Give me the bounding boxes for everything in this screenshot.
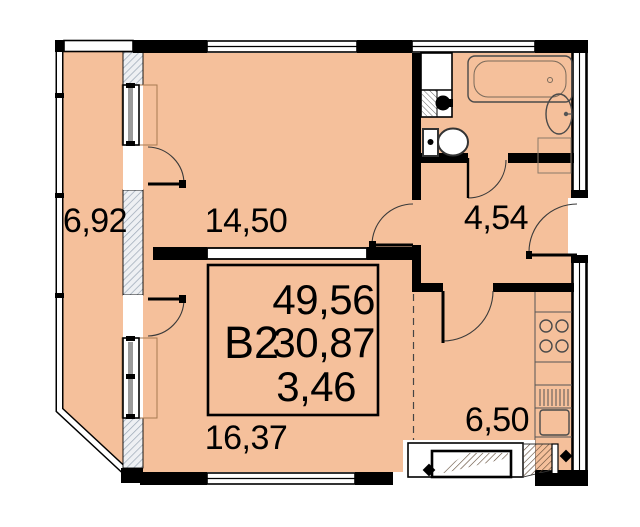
- window-hinge-tick: [126, 336, 135, 341]
- window-hinge-tick: [126, 141, 135, 146]
- bay-mullion: [552, 444, 558, 476]
- entrance-jamb-top: [571, 190, 588, 198]
- wall-top-right-corner: [535, 40, 588, 53]
- area-label-balcony: 6,92: [63, 202, 127, 240]
- wall-top-middle: [357, 40, 412, 53]
- window-sash-bar: [128, 88, 133, 142]
- glazing-mullion-tick: [55, 293, 64, 298]
- floorplan: 6,92 14,50 4,54 16,37 6,50 B2 49,56 30,8…: [0, 0, 640, 527]
- glazing-mullion-tick: [55, 193, 64, 198]
- area-label-hallway: 4,54: [464, 199, 528, 237]
- wall-kitchen-top-right: [493, 283, 574, 292]
- hatched-wall-segment: [123, 418, 143, 468]
- window-hinge-tick: [126, 374, 135, 379]
- divider-bottom-cap: [121, 468, 143, 483]
- unit-code: B2: [224, 317, 279, 368]
- wall-bottom-middle: [355, 472, 393, 485]
- toilet-bowl: [438, 129, 468, 156]
- riser-valve: [447, 99, 453, 107]
- unit-total-area: 49,56: [272, 276, 375, 323]
- partition-light: [207, 248, 367, 259]
- balcony-top-band: [64, 41, 133, 52]
- entrance-opening: [568, 198, 590, 255]
- door-leaf-cap: [179, 295, 186, 303]
- door-leaf-cap: [369, 241, 376, 249]
- door-leaf-cap: [179, 180, 186, 188]
- toilet-flush-dot: [428, 139, 434, 145]
- duct-shaft-hatch: [421, 90, 437, 117]
- hatched-wall-segment: [123, 52, 143, 85]
- window-hinge-tick: [126, 414, 135, 419]
- glazing-mullion-tick: [55, 93, 64, 98]
- wall-kitchen-top-left: [412, 283, 443, 292]
- wall-top-left: [133, 40, 207, 53]
- unit-living-area: 30,87: [272, 319, 375, 366]
- floorplan-drawing: 6,92 14,50 4,54 16,37 6,50 B2 49,56 30,8…: [0, 0, 640, 527]
- area-label-living: 16,37: [205, 419, 288, 457]
- area-label-bedroom: 14,50: [205, 202, 288, 240]
- partition-stub-left: [153, 247, 207, 260]
- bay-corner-wall: [535, 473, 588, 486]
- window-hinge-tick: [126, 83, 135, 88]
- wall-bedroom-hall: [412, 53, 421, 200]
- unit-extra-area: 3,46: [276, 363, 356, 410]
- area-label-kitchen: 6,50: [465, 401, 529, 439]
- wall-bathroom-bottom-right: [508, 153, 574, 163]
- floor-balcony: [63, 52, 123, 470]
- wall-bottom-left: [140, 472, 207, 485]
- door-leaf-cap: [526, 251, 532, 259]
